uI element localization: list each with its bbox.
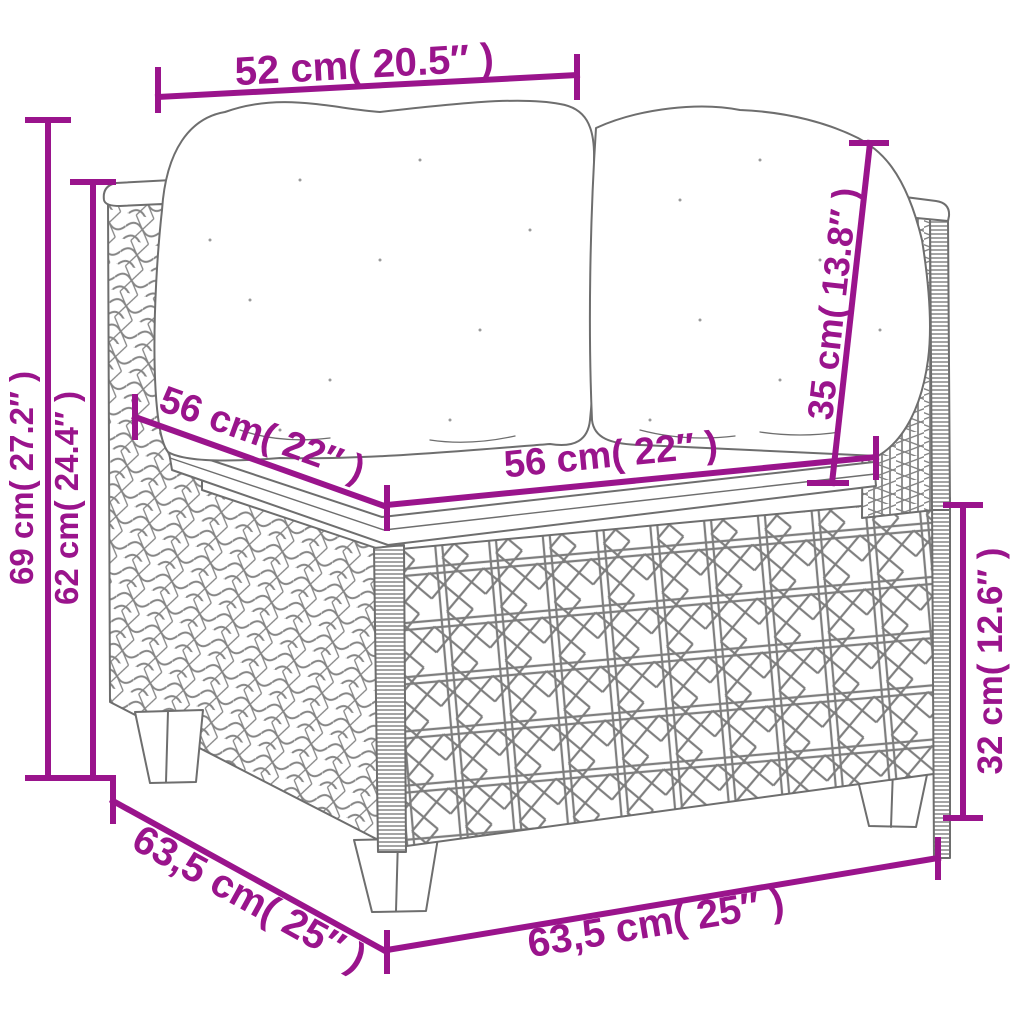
dim-armrest-height: 62 cm( 24.4″ )	[48, 182, 113, 778]
base-right-edge	[932, 498, 950, 858]
dim-label-overall-height: 69 cm( 27.2″ )	[3, 371, 40, 585]
dim-label-back-width: 52 cm( 20.5″ )	[234, 36, 495, 94]
dim-back-width: 52 cm( 20.5″ )	[158, 36, 577, 110]
dim-label-overall-width: 63,5 cm( 25″ )	[524, 880, 787, 966]
product-dimension-diagram: 52 cm( 20.5″ ) 69 cm( 27.2″ ) 62 cm( 24.…	[0, 0, 1024, 1024]
dim-base-height: 32 cm( 12.6″ )	[946, 505, 1010, 818]
dim-label-armrest-height: 62 cm( 24.4″ )	[48, 391, 85, 605]
base-corner-strip	[374, 545, 406, 852]
dim-label-overall-depth: 63,5 cm( 25″ )	[125, 817, 373, 981]
sofa-diagram-canvas: 52 cm( 20.5″ ) 69 cm( 27.2″ ) 62 cm( 24.…	[0, 0, 1024, 1024]
dim-overall-width: 63,5 cm( 25″ )	[387, 840, 938, 966]
right-back-cushion	[590, 107, 930, 456]
right-armrest-edge	[930, 214, 950, 510]
leg-back-left	[135, 710, 203, 783]
dim-label-base-height: 32 cm( 12.6″ )	[971, 548, 1010, 775]
